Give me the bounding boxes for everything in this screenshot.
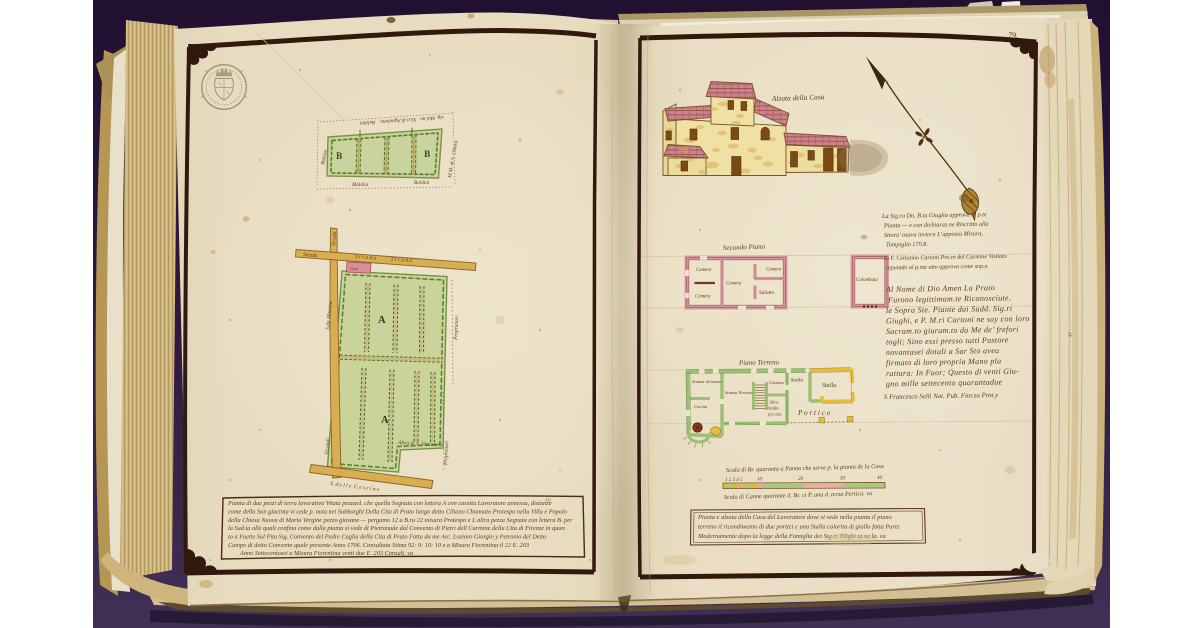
svg-text:Cantina: Cantina [769,380,785,385]
svg-text:Stanza da basso: Stanza da basso [692,379,722,384]
svg-text:della Chiesa Nuova di Maria Ve: della Chiesa Nuova di Maria Vergine pezz… [228,517,573,524]
svg-text:Tompiglio 170.8.: Tompiglio 170.8. [886,241,928,249]
svg-text:Cucina: Cucina [694,404,708,409]
svg-text:Stalla: Stalla [768,406,779,411]
svg-text:Casa: Casa [350,266,359,271]
svg-text:Pianta e alzata della Casa del: Pianta e alzata della Casa del Lavorator… [697,514,892,521]
svg-text:Altra: Altra [768,400,779,405]
svg-text:Stanza Terrena: Stanza Terrena [725,390,753,395]
svg-text:Pianta di due pezzi di terra l: Pianta di due pezzi di terra lavorativa … [227,500,552,507]
svg-text:10: 10 [757,478,763,483]
svg-text:Piano Terreno: Piano Terreno [738,358,780,367]
svg-text:Camera: Camera [766,268,782,273]
svg-text:piccola: piccola [767,412,782,417]
svg-text:Salotto: Salotto [759,290,775,296]
svg-text:come della San giacinta vi ced: come della San giacinta vi cede p. nota … [228,508,567,515]
svg-text:A: A [378,315,386,326]
svg-text:A: A [381,415,389,426]
svg-text:40: 40 [877,476,883,481]
svg-text:Al Nome di Dio Amen La Prato: Al Nome di Dio Amen La Prato [885,283,995,294]
svg-text:Alzata della Casa: Alzata della Casa [771,92,825,103]
svg-text:Camera: Camera [695,295,711,300]
svg-text:Maldini: Maldini [351,182,369,188]
svg-text:Stalla: Stalla [791,378,804,384]
svg-text:20: 20 [798,477,804,482]
svg-text:B: B [336,152,343,162]
svg-text:1 2 3 4 5: 1 2 3 4 5 [725,478,743,483]
svg-text:79.: 79. [1008,31,1018,40]
svg-text:to a Fuette Sul Pita Sig. Conv: to a Fuette Sul Pita Sig. Convento del P… [228,534,546,541]
svg-text:Anno Settecentosei a Misura Fi: Anno Settecentosei a Misura Fiorentina v… [239,550,413,557]
svg-text:terreno il ricondimento di due: terreno il ricondimento di due portici e… [698,524,900,531]
svg-text:Camera: Camera [726,282,742,287]
svg-text:Colombaia: Colombaia [856,278,878,283]
svg-text:P o r t i c o: P o r t i c o [797,409,831,417]
svg-text:la Sud.ta alle quali confina c: la Sud.ta alle quali confina come dalla … [228,525,565,532]
svg-text:Secondo Piano: Secondo Piano [723,243,766,252]
svg-text:Stalla.: Stalla. [822,383,838,389]
svg-text:Strada: Strada [331,231,338,246]
svg-text:30: 30 [840,477,846,482]
svg-text:Camera: Camera [696,268,712,273]
svg-text:Baldini: Baldini [414,180,430,186]
svg-text:Campo di detto Convento quale: Campo di detto Convento quale presente A… [228,542,529,549]
svg-text:B: B [424,150,431,160]
svg-text:Strada: Strada [303,252,318,259]
